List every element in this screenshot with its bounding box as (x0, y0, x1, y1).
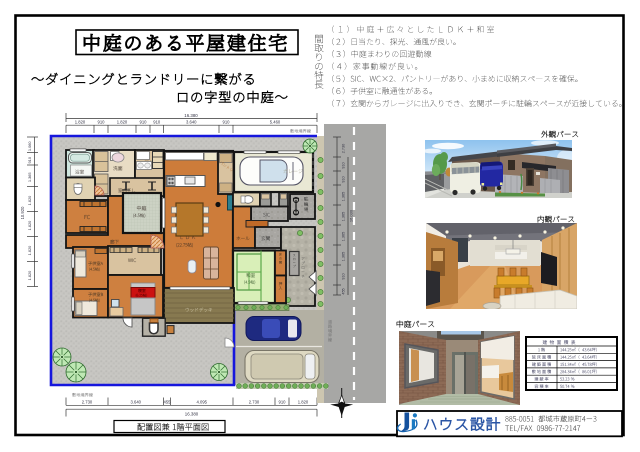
svg-text:1.365: 1.365 (342, 192, 346, 202)
svg-text:10.920: 10.920 (20, 206, 25, 219)
svg-text:16.380: 16.380 (184, 113, 198, 118)
svg-text:1.820: 1.820 (27, 270, 32, 281)
svg-text:910: 910 (342, 273, 346, 279)
svg-text:2.730: 2.730 (82, 399, 93, 404)
svg-text:910: 910 (98, 120, 106, 125)
svg-text:1.820: 1.820 (27, 220, 32, 231)
svg-text:1.820: 1.820 (27, 245, 32, 256)
svg-text:16.380: 16.380 (185, 411, 199, 416)
svg-text:5.460: 5.460 (270, 120, 281, 125)
svg-text:910: 910 (27, 156, 32, 163)
svg-text:910: 910 (342, 162, 346, 168)
svg-text:4.095: 4.095 (197, 399, 208, 404)
svg-text:910: 910 (279, 399, 287, 404)
svg-text:910: 910 (342, 176, 346, 182)
svg-text:1.820: 1.820 (117, 120, 128, 125)
svg-text:1.060: 1.060 (27, 141, 32, 152)
svg-text:2.730: 2.730 (249, 399, 260, 404)
svg-text:3.640: 3.640 (186, 120, 197, 125)
svg-text:910: 910 (140, 120, 148, 125)
svg-text:455: 455 (342, 288, 346, 294)
svg-text:16.030: 16.030 (349, 209, 354, 222)
svg-text:1.820: 1.820 (298, 399, 309, 404)
svg-text:1.365: 1.365 (342, 252, 346, 262)
svg-text:910: 910 (153, 120, 161, 125)
svg-text:2.730: 2.730 (342, 144, 346, 154)
svg-text:1.365: 1.365 (342, 212, 346, 222)
svg-text:1.365: 1.365 (27, 172, 32, 182)
svg-text:455: 455 (164, 399, 172, 404)
svg-text:3.640: 3.640 (131, 399, 142, 404)
svg-text:1.365: 1.365 (342, 232, 346, 242)
svg-text:910: 910 (223, 120, 231, 125)
svg-text:1.820: 1.820 (75, 120, 86, 125)
svg-text:1.820: 1.820 (27, 195, 32, 206)
